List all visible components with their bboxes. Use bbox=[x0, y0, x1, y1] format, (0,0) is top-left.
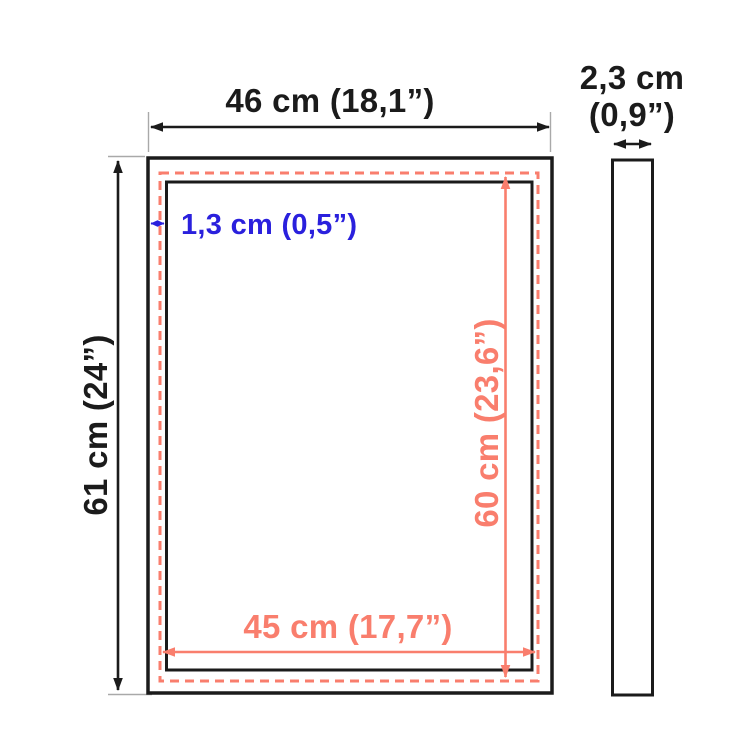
frame-dimensions-diagram: 46 cm (18,1”) 61 cm (24”) 60 cm (23,6”) … bbox=[0, 0, 750, 750]
side-profile-rect bbox=[613, 160, 653, 695]
dimension-outer-height: 61 cm (24”) bbox=[77, 161, 118, 690]
depth-label-in: (0,9”) bbox=[589, 96, 675, 133]
inner-width-label: 45 cm (17,7”) bbox=[243, 608, 452, 645]
inner-height-label: 60 cm (23,6”) bbox=[468, 318, 505, 527]
frame-side-view bbox=[613, 160, 653, 695]
dimension-depth: 2,3 cm (0,9”) bbox=[580, 59, 685, 144]
dimension-frame-face: 1,3 cm (0,5”) bbox=[151, 209, 357, 241]
outer-height-label: 61 cm (24”) bbox=[77, 334, 114, 515]
diagram-canvas: 46 cm (18,1”) 61 cm (24”) 60 cm (23,6”) … bbox=[0, 0, 750, 750]
outer-width-label: 46 cm (18,1”) bbox=[225, 82, 434, 119]
depth-label-cm: 2,3 cm bbox=[580, 59, 685, 96]
frame-face-label: 1,3 cm (0,5”) bbox=[181, 209, 357, 241]
dimension-outer-width: 46 cm (18,1”) bbox=[151, 82, 549, 127]
